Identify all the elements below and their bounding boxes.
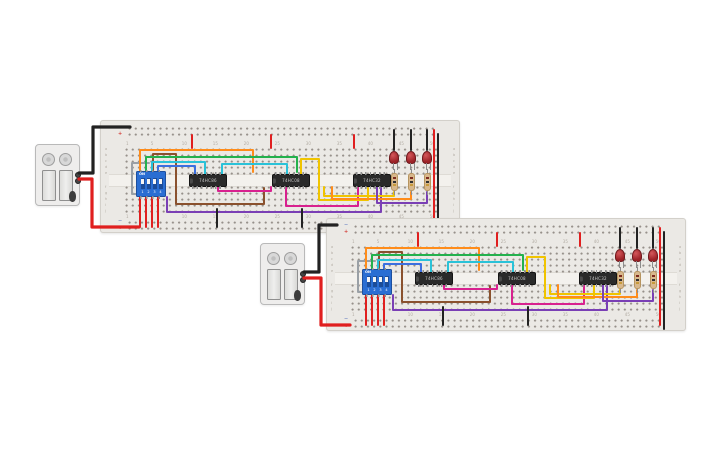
power-rail-top: [354, 225, 662, 237]
logic-ic-chip[interactable]: 74HC32: [353, 174, 391, 187]
column-label: 5: [151, 215, 154, 219]
resistor-band: [636, 279, 639, 281]
column-label: 30: [306, 142, 311, 146]
column-label: 15: [439, 240, 444, 244]
breadboard-2[interactable]: −+−+115510101515202025253030353540404545…: [326, 218, 686, 331]
row-letter: e: [105, 172, 107, 176]
column-label: 15: [439, 313, 444, 317]
battery-positive-terminal[interactable]: [75, 178, 81, 184]
resistor-2[interactable]: [634, 271, 641, 289]
dip-slider-knob: [367, 277, 370, 282]
row-letter: f: [105, 186, 106, 190]
resistor-1[interactable]: [617, 271, 624, 289]
resistor-band: [636, 275, 639, 277]
resistor-band: [426, 177, 429, 179]
row-letter: j: [679, 308, 680, 312]
logic-ic-chip[interactable]: 74HC86: [189, 174, 227, 187]
dip-slider-4[interactable]: [385, 276, 389, 287]
row-letter: j: [453, 210, 454, 214]
dip-slider-3[interactable]: [379, 276, 383, 287]
row-letter: b: [331, 252, 333, 256]
dip-slider-1[interactable]: [367, 276, 371, 287]
row-letter: h: [331, 296, 333, 300]
row-letter: f: [453, 186, 454, 190]
battery-pack-2[interactable]: [260, 243, 305, 305]
rail-minus-label: −: [118, 219, 122, 224]
battery-cell: [42, 170, 56, 201]
led-red-2[interactable]: [406, 151, 416, 164]
dip-slider-knob: [141, 179, 144, 184]
resistor-band: [652, 282, 655, 284]
dip-pin-number: 3: [153, 191, 157, 195]
ic-label: 74HC08: [499, 273, 535, 284]
row-letter: h: [679, 296, 681, 300]
battery-switch[interactable]: [69, 191, 76, 202]
column-label: 40: [594, 240, 599, 244]
dip-slider-knob: [379, 277, 382, 282]
column-label: 20: [244, 215, 249, 219]
column-label: 1: [352, 240, 355, 244]
column-label: 40: [368, 142, 373, 146]
column-label: 50: [656, 240, 661, 244]
resistor-1[interactable]: [391, 173, 398, 191]
logic-ic-chip[interactable]: 74HC08: [272, 174, 310, 187]
column-label: 1: [126, 142, 129, 146]
row-letter: c: [331, 258, 333, 262]
column-label: 20: [244, 142, 249, 146]
resistor-body: [424, 173, 431, 191]
dip-slider-knob: [159, 179, 162, 184]
resistor-body: [634, 271, 641, 289]
rail-minus-label: −: [344, 223, 348, 228]
resistor-band: [426, 181, 429, 183]
led-lead: [414, 163, 415, 170]
row-letter: a: [331, 246, 333, 250]
rail-plus-label: +: [118, 132, 122, 137]
dip-slider-knob: [385, 277, 388, 282]
row-letter: b: [453, 154, 455, 158]
led-lead: [397, 163, 398, 170]
column-label: 45: [399, 142, 404, 146]
column-label: 15: [213, 142, 218, 146]
column-label: 50: [430, 142, 435, 146]
dip-pin-number: 1: [141, 191, 145, 195]
battery-positive-terminal[interactable]: [300, 277, 306, 283]
column-label: 10: [182, 215, 187, 219]
dip-slider-knob: [373, 277, 376, 282]
dip-slider-knob: [153, 179, 156, 184]
circuit-canvas: −+−+115510101515202025253030353540404545…: [0, 0, 725, 453]
column-label: 50: [656, 313, 661, 317]
resistor-band: [393, 177, 396, 179]
dip-pin-number: 4: [385, 289, 389, 293]
resistor-band: [410, 181, 413, 183]
column-label: 40: [594, 313, 599, 317]
resistor-band: [636, 282, 639, 284]
resistor-band: [652, 275, 655, 277]
dip-pin-number: 4: [159, 191, 163, 195]
breadboard-1[interactable]: −+−+115510101515202025253030353540404545…: [100, 120, 460, 233]
row-letter: e: [331, 270, 333, 274]
row-letter: a: [453, 148, 455, 152]
led-lead: [623, 261, 624, 268]
ic-pins-bottom: [501, 284, 533, 287]
row-letter: f: [679, 284, 680, 288]
row-letter: j: [105, 210, 106, 214]
dip-slider-1[interactable]: [141, 178, 145, 189]
logic-ic-chip[interactable]: 74HC86: [415, 272, 453, 285]
resistor-body: [408, 173, 415, 191]
column-label: 25: [501, 313, 506, 317]
resistor-body: [617, 271, 624, 289]
ic-label: 74HC86: [416, 273, 452, 284]
row-letter: i: [105, 204, 106, 208]
dip-on-label: ON: [365, 271, 371, 275]
row-letter: e: [679, 270, 681, 274]
row-letter: a: [105, 148, 107, 152]
led-red-3[interactable]: [422, 151, 432, 164]
rail-minus-label: −: [344, 317, 348, 322]
column-label: 25: [501, 240, 506, 244]
battery-cell-top: [267, 252, 280, 265]
dip-pin-number: 1: [367, 289, 371, 293]
ic-label: 74HC32: [580, 273, 616, 284]
column-label: 5: [377, 240, 380, 244]
dip-pins-bottom: [140, 196, 162, 199]
resistor-3[interactable]: [650, 271, 657, 289]
column-label: 30: [532, 240, 537, 244]
row-letter: g: [331, 290, 333, 294]
battery-pack-1[interactable]: [35, 144, 80, 206]
logic-ic-chip[interactable]: 74HC32: [579, 272, 617, 285]
battery-switch[interactable]: [294, 290, 301, 301]
led-lead: [656, 261, 657, 268]
dip-slider-2[interactable]: [147, 178, 151, 189]
battery-cell-top: [284, 252, 297, 265]
dip-pins-bottom: [366, 294, 388, 297]
dip-switch[interactable]: ON1234: [136, 171, 166, 197]
power-rail-top: [128, 127, 436, 139]
led-red-3[interactable]: [648, 249, 658, 262]
resistor-band: [410, 184, 413, 186]
column-label: 25: [275, 142, 280, 146]
dip-on-label: ON: [139, 173, 145, 177]
row-letter: d: [105, 166, 107, 170]
resistor-band: [619, 275, 622, 277]
rail-minus-label: −: [118, 125, 122, 130]
led-lead: [640, 261, 641, 268]
row-letter: f: [331, 284, 332, 288]
ic-pins-bottom: [275, 186, 307, 189]
ic-pins-bottom: [192, 186, 224, 189]
row-letter: g: [105, 192, 107, 196]
row-letter: d: [453, 166, 455, 170]
rail-plus-label: +: [344, 324, 348, 329]
row-letter: i: [331, 302, 332, 306]
dip-pin-number: 2: [147, 191, 151, 195]
battery-cell-top: [42, 153, 55, 166]
resistor-body: [391, 173, 398, 191]
ic-pins-bottom: [418, 284, 450, 287]
resistor-band: [410, 177, 413, 179]
dip-slider-knob: [147, 179, 150, 184]
column-label: 5: [151, 142, 154, 146]
row-letter: c: [453, 160, 455, 164]
dip-slider-4[interactable]: [159, 178, 163, 189]
row-letter: d: [679, 264, 681, 268]
column-label: 5: [377, 313, 380, 317]
row-letter: e: [453, 172, 455, 176]
rail-plus-label: +: [344, 230, 348, 235]
battery-cell-top: [59, 153, 72, 166]
row-letter: a: [679, 246, 681, 250]
row-letter: g: [679, 290, 681, 294]
column-label: 35: [563, 313, 568, 317]
led-red-2[interactable]: [632, 249, 642, 262]
row-letter: b: [105, 154, 107, 158]
column-label: 10: [408, 240, 413, 244]
row-letter: h: [453, 198, 455, 202]
battery-cell: [267, 269, 281, 300]
resistor-3[interactable]: [424, 173, 431, 191]
column-label: 30: [306, 215, 311, 219]
column-label: 10: [408, 313, 413, 317]
resistor-band: [619, 282, 622, 284]
row-letter: i: [679, 302, 680, 306]
column-label: 45: [625, 240, 630, 244]
row-letter: h: [105, 198, 107, 202]
resistor-2[interactable]: [408, 173, 415, 191]
row-letter: c: [105, 160, 107, 164]
row-letter: i: [453, 204, 454, 208]
resistor-band: [426, 184, 429, 186]
row-letter: b: [679, 252, 681, 256]
resistor-band: [393, 181, 396, 183]
column-label: 25: [275, 215, 280, 219]
dip-pin-number: 2: [373, 289, 377, 293]
column-label: 20: [470, 313, 475, 317]
resistor-band: [393, 184, 396, 186]
row-letter: c: [679, 258, 681, 262]
column-label: 30: [532, 313, 537, 317]
resistor-body: [650, 271, 657, 289]
led-red-1[interactable]: [389, 151, 399, 164]
dip-slider-3[interactable]: [153, 178, 157, 189]
dip-pin-number: 3: [379, 289, 383, 293]
row-letter: j: [331, 308, 332, 312]
column-label: 45: [625, 313, 630, 317]
dip-switch[interactable]: ON1234: [362, 269, 392, 295]
ic-label: 74HC32: [354, 175, 390, 186]
ic-pins-bottom: [356, 186, 388, 189]
column-label: 1: [126, 215, 129, 219]
ic-label: 74HC08: [273, 175, 309, 186]
led-red-1[interactable]: [615, 249, 625, 262]
row-letter: g: [453, 192, 455, 196]
logic-ic-chip[interactable]: 74HC08: [498, 272, 536, 285]
dip-slider-2[interactable]: [373, 276, 377, 287]
led-lead: [430, 163, 431, 170]
column-label: 20: [470, 240, 475, 244]
column-label: 35: [563, 240, 568, 244]
power-rail-bottom: [354, 319, 662, 331]
column-label: 35: [337, 142, 342, 146]
row-letter: d: [331, 264, 333, 268]
column-label: 1: [352, 313, 355, 317]
ic-label: 74HC86: [190, 175, 226, 186]
resistor-band: [652, 279, 655, 281]
column-label: 10: [182, 142, 187, 146]
rail-plus-label: +: [118, 226, 122, 231]
column-label: 15: [213, 215, 218, 219]
resistor-band: [619, 279, 622, 281]
ic-pins-bottom: [582, 284, 614, 287]
